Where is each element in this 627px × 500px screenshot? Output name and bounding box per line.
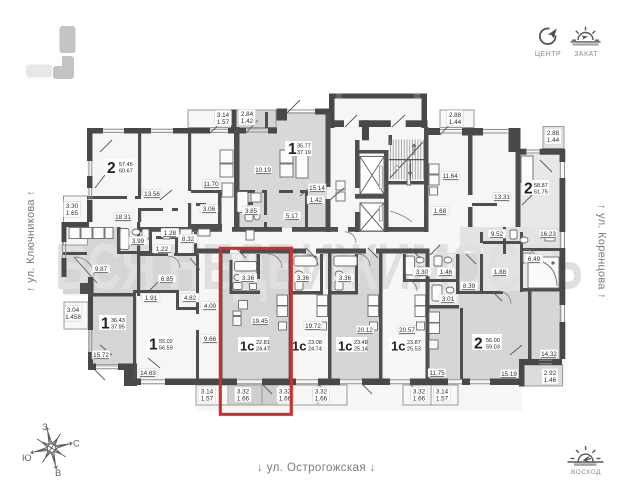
svg-text:3.36: 3.36 [297,275,310,282]
svg-text:1.44: 1.44 [547,137,560,144]
svg-text:1: 1 [288,141,297,158]
svg-text:10.19: 10.19 [255,167,271,174]
svg-text:16.23: 16.23 [540,231,556,238]
svg-text:3.04: 3.04 [67,307,80,314]
svg-text:1.66: 1.66 [413,396,426,403]
svg-text:15.14: 15.14 [309,185,325,192]
svg-text:1.66: 1.66 [315,396,328,403]
svg-text:1.46: 1.46 [440,269,453,276]
svg-text:14.32: 14.32 [541,351,557,358]
svg-text:1.42: 1.42 [310,197,323,204]
svg-text:2.84: 2.84 [241,111,254,118]
svg-text:15.19: 15.19 [501,371,517,378]
svg-text:2: 2 [524,181,533,198]
svg-text:4.00: 4.00 [204,303,217,310]
svg-text:1.44: 1.44 [449,119,462,126]
svg-text:3.30: 3.30 [66,203,79,210]
svg-text:58.87: 58.87 [534,183,548,189]
svg-text:1с: 1с [338,339,352,354]
svg-text:1с: 1с [391,339,405,354]
svg-text:2.92: 2.92 [544,370,557,377]
svg-text:1.66: 1.66 [237,396,250,403]
svg-text:18.31: 18.31 [115,214,131,221]
svg-text:14.63: 14.63 [140,370,156,377]
svg-text:ЗАКАТ: ЗАКАТ [574,51,598,58]
svg-text:4.82: 4.82 [184,295,197,302]
svg-text:11.75: 11.75 [429,370,445,377]
svg-text:9.87: 9.87 [95,266,108,273]
svg-text:1: 1 [101,316,110,333]
svg-text:23.48: 23.48 [354,340,368,346]
svg-text:3.32: 3.32 [279,389,292,396]
svg-text:1.57: 1.57 [217,119,230,126]
svg-text:5.17: 5.17 [286,213,299,220]
svg-text:37.19: 37.19 [297,150,311,156]
svg-text:11.70: 11.70 [203,181,219,188]
svg-text:59.03: 59.03 [486,345,500,351]
svg-text:2: 2 [107,160,116,177]
svg-text:20.57: 20.57 [399,327,415,334]
svg-text:3.32: 3.32 [237,389,250,396]
svg-text:55.02: 55.02 [159,339,173,345]
svg-text:↓ ул. Острогожская ↓: ↓ ул. Острогожская ↓ [257,462,376,474]
svg-text:1.42: 1.42 [241,118,254,125]
svg-text:60.67: 60.67 [119,169,133,175]
svg-text:22.81: 22.81 [256,340,270,346]
svg-text:3.32: 3.32 [315,389,328,396]
svg-text:3.14: 3.14 [436,389,449,396]
svg-text:35.77: 35.77 [297,144,311,150]
svg-text:1.65: 1.65 [66,210,79,217]
svg-text:61.75: 61.75 [534,190,548,196]
svg-text:3.85: 3.85 [245,208,258,215]
svg-text:↑ ул. Ключникова ↑: ↑ ул. Ключникова ↑ [25,190,37,292]
svg-text:1с: 1с [292,339,306,354]
svg-text:1.57: 1.57 [201,396,214,403]
svg-text:6.85: 6.85 [161,276,174,283]
svg-text:1.458: 1.458 [65,314,81,321]
svg-text:3.36: 3.36 [339,275,352,282]
svg-text:В: В [55,468,61,479]
svg-text:8.32: 8.32 [182,236,195,243]
svg-text:Ю: Ю [22,453,32,464]
svg-text:9.52: 9.52 [491,231,504,238]
svg-text:1: 1 [149,337,158,354]
svg-text:15.72: 15.72 [93,352,109,359]
svg-text:20.12: 20.12 [357,327,373,334]
svg-text:36.43: 36.43 [111,318,125,324]
svg-text:3.32: 3.32 [413,389,426,396]
svg-text:19.72: 19.72 [305,323,321,330]
svg-text:3.01: 3.01 [442,296,455,303]
svg-text:37.95: 37.95 [111,325,125,331]
svg-text:2.88: 2.88 [547,130,560,137]
svg-text:25.53: 25.53 [407,347,421,353]
svg-text:1.68: 1.68 [434,208,447,215]
svg-text:ЦЕНТР: ЦЕНТР [535,51,561,58]
svg-text:24.74: 24.74 [308,347,322,353]
svg-text:56.59: 56.59 [159,346,173,352]
svg-text:1.91: 1.91 [145,295,158,302]
svg-text:6.49: 6.49 [528,256,541,263]
svg-text:19.45: 19.45 [252,318,268,325]
svg-text:1.46: 1.46 [544,377,557,384]
svg-text:13.31: 13.31 [494,194,510,201]
svg-text:2: 2 [474,336,483,353]
svg-text:3.14: 3.14 [217,112,230,119]
svg-text:3.30: 3.30 [416,269,429,276]
svg-text:1.88: 1.88 [494,269,507,276]
svg-text:57.45: 57.45 [119,162,133,168]
svg-text:ВОСХОД: ВОСХОД [571,469,601,476]
svg-text:З: З [42,422,48,433]
svg-text:С: С [73,439,80,450]
svg-text:1.57: 1.57 [436,396,449,403]
svg-text:24.47: 24.47 [256,347,270,353]
svg-text:23.08: 23.08 [308,340,322,346]
svg-text:3.99: 3.99 [132,238,145,245]
svg-text:1.28: 1.28 [164,230,177,237]
svg-text:13.56: 13.56 [144,191,160,198]
svg-text:3.36: 3.36 [242,275,255,282]
svg-text:2.88: 2.88 [449,112,462,119]
svg-text:1.22: 1.22 [156,246,169,253]
svg-text:25.14: 25.14 [354,347,368,353]
svg-text:1.66: 1.66 [279,396,292,403]
svg-text:9.66: 9.66 [204,336,217,343]
svg-text:8.39: 8.39 [463,283,476,290]
svg-text:23.87: 23.87 [407,340,421,346]
svg-text:1с: 1с [240,339,254,354]
svg-text:↑ ул. Коренцова ↑: ↑ ул. Коренцова ↑ [596,204,608,299]
svg-text:56.00: 56.00 [486,338,500,344]
svg-text:3.14: 3.14 [201,389,214,396]
svg-text:3.06: 3.06 [203,206,216,213]
svg-text:11.64: 11.64 [442,173,458,180]
